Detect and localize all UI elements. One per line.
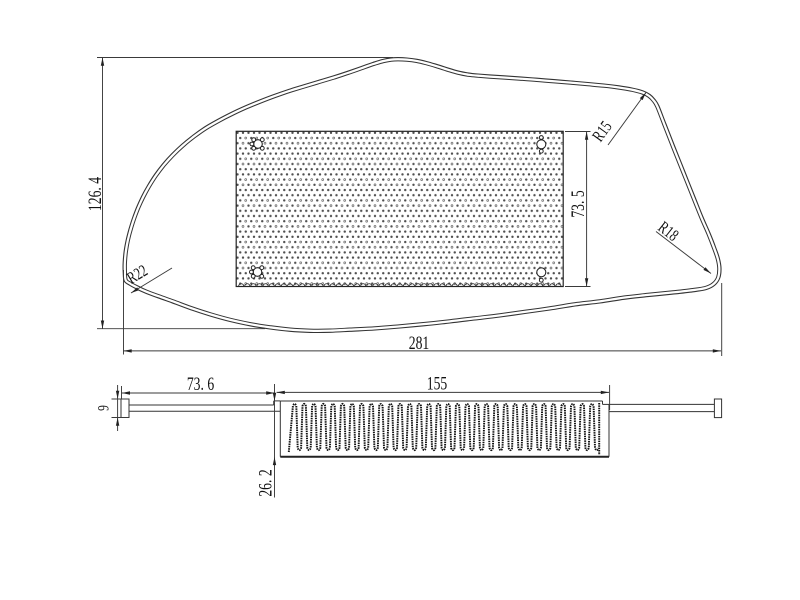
svg-text:73. 5: 73. 5 bbox=[567, 190, 589, 217]
svg-text:155: 155 bbox=[427, 372, 448, 394]
svg-text:26. 2: 26. 2 bbox=[254, 469, 276, 496]
svg-text:281: 281 bbox=[409, 332, 430, 354]
svg-text:R15: R15 bbox=[589, 118, 616, 145]
svg-text:R18: R18 bbox=[654, 218, 681, 245]
svg-text:126. 4: 126. 4 bbox=[84, 176, 106, 211]
svg-text:9: 9 bbox=[96, 405, 113, 411]
svg-text:73. 6: 73. 6 bbox=[187, 373, 214, 395]
